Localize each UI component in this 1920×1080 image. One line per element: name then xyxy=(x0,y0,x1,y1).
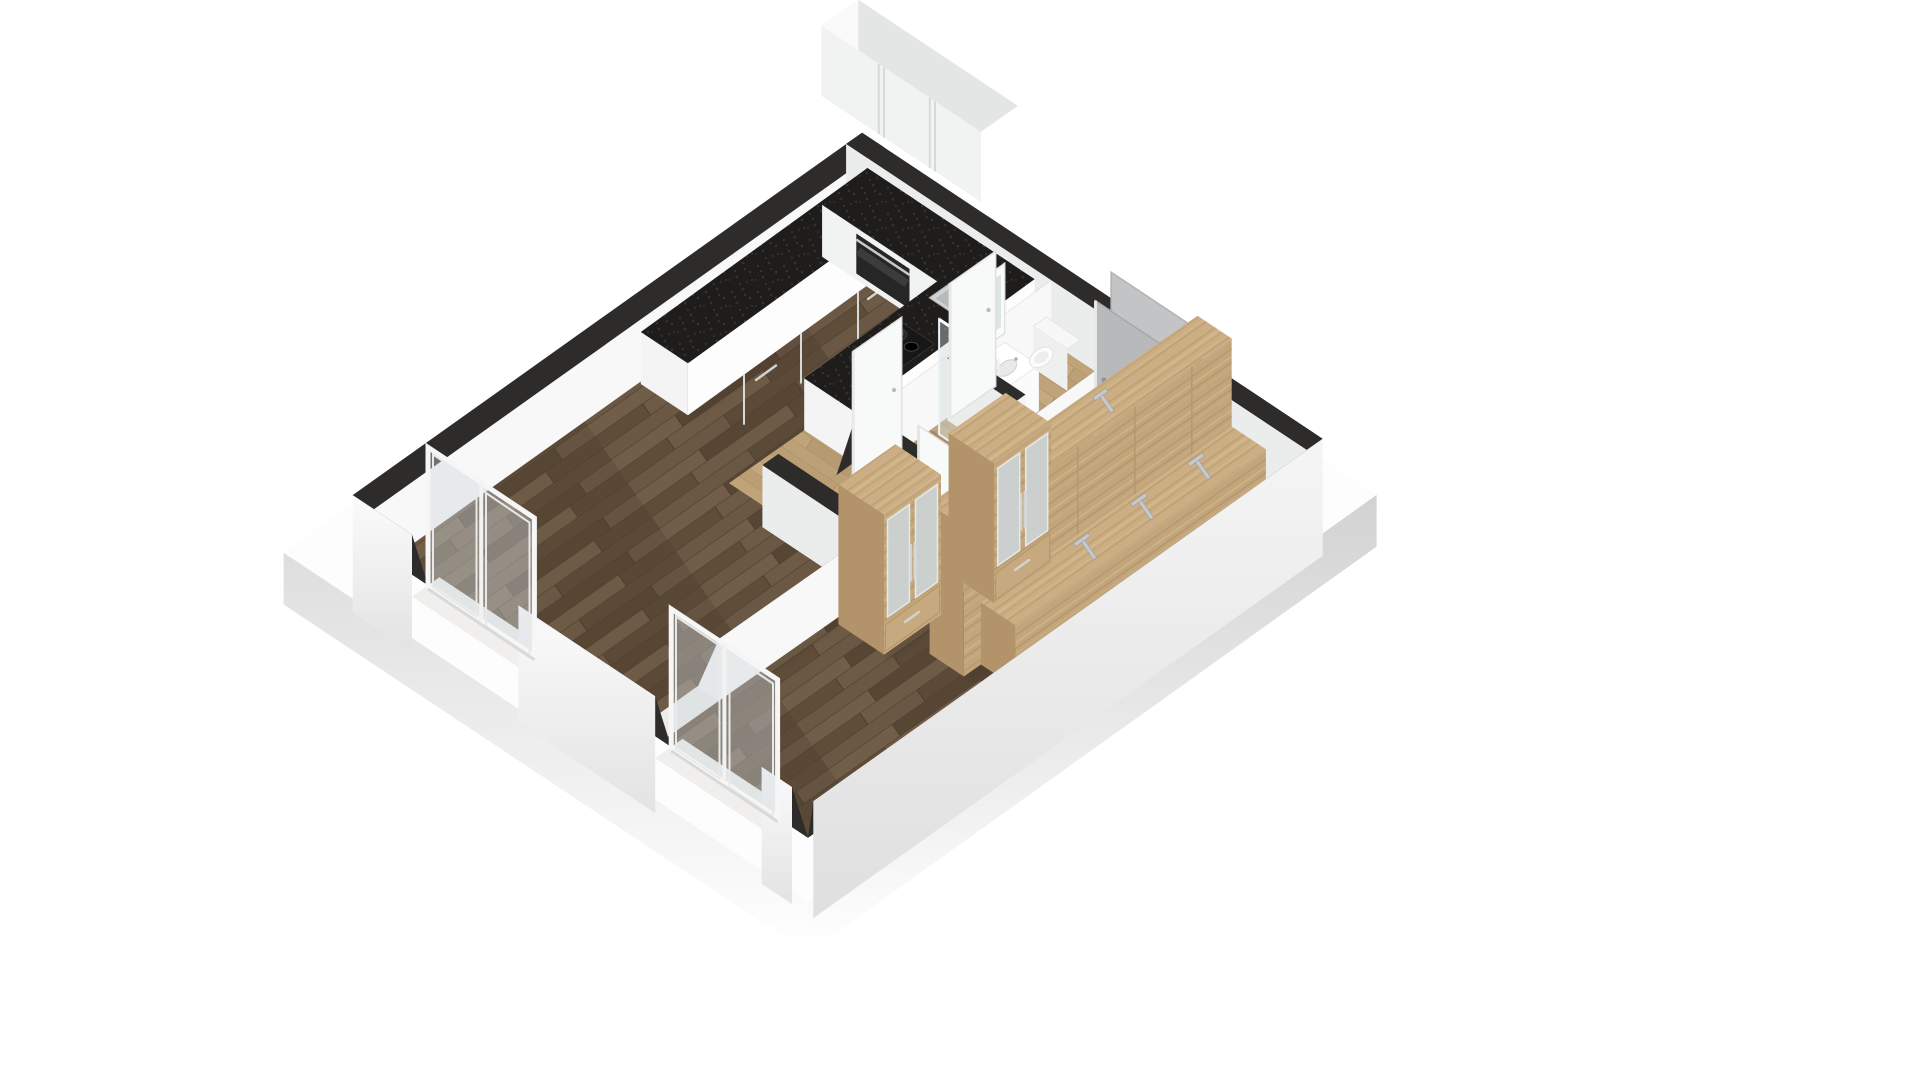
burner xyxy=(904,342,918,351)
floorplan-render-canvas xyxy=(0,0,1920,1080)
wardrobe-1-mirror-door-right xyxy=(916,485,938,598)
wardrobe-1 xyxy=(838,444,941,654)
door-handle xyxy=(986,308,990,312)
wardrobe-2 xyxy=(949,393,1052,603)
door-handle xyxy=(892,388,896,392)
wardrobe-2-mirror-door-left xyxy=(998,453,1020,566)
basin-faucet xyxy=(1014,357,1018,361)
floorplan-svg xyxy=(0,0,1920,1080)
wardrobe-1-mirror-door-left xyxy=(888,505,910,618)
wardrobe-2-mirror-door-right xyxy=(1026,433,1048,546)
